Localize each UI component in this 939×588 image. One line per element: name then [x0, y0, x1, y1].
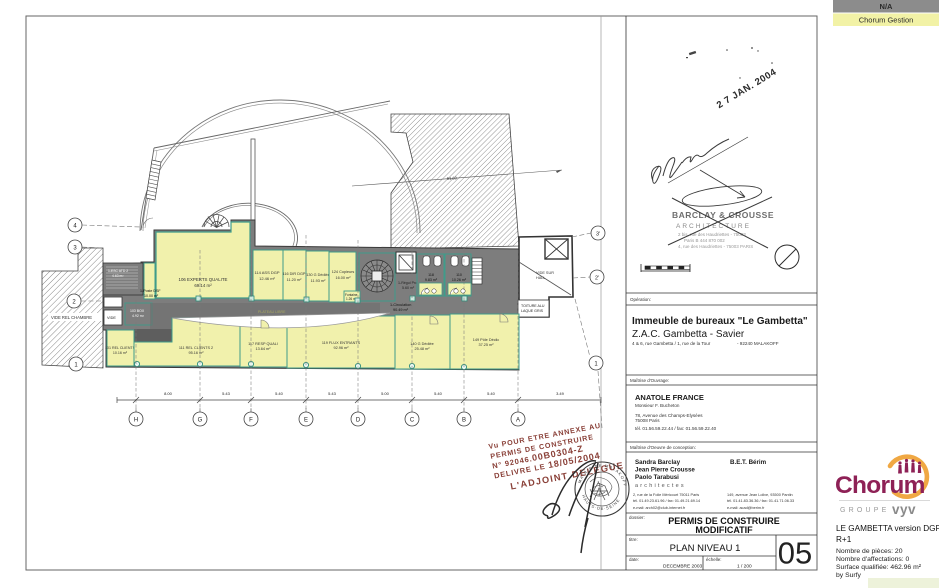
svg-text:117 RESP QUALI: 117 RESP QUALI — [248, 342, 278, 346]
svg-text:4 & 6, rue Gambetta / 1,: 4 & 6, rue Gambetta / 1, rue de la Tour — [632, 341, 711, 346]
svg-text:Paris B 444 870 002: Paris B 444 870 002 — [684, 238, 725, 243]
svg-text:GROUPE: GROUPE — [840, 507, 890, 514]
svg-text:10.16 m²: 10.16 m² — [113, 351, 128, 355]
svg-text:95.16 m²: 95.16 m² — [189, 351, 205, 355]
svg-text:Immeuble de bureaux "Le Gambet: Immeuble de bureaux "Le Gambetta" — [632, 316, 808, 327]
svg-text:E: E — [304, 418, 308, 424]
svg-text:10.00 m²: 10.00 m² — [144, 294, 159, 298]
svg-text:140 G Dédiée: 140 G Dédiée — [410, 342, 433, 346]
svg-text:tél. 01.41.83.36.36 / fax: 01.: tél. 01.41.83.36.36 / fax: 01.41.71.06.3… — [727, 499, 794, 503]
svg-text:114 ASS DGP: 114 ASS DGP — [254, 270, 279, 275]
svg-text:HALL: HALL — [536, 276, 546, 280]
svg-text:BARCLAY & CROUSSE: BARCLAY & CROUSSE — [672, 210, 774, 220]
svg-text:12.46 m²: 12.46 m² — [259, 276, 275, 281]
svg-text:tél. 01.56.59.22.44 / fax: 01.: tél. 01.56.59.22.44 / fax: 01.56.59.22.4… — [635, 426, 717, 431]
svg-text:Chorum Gestion: Chorum Gestion — [859, 16, 914, 25]
svg-text:H: H — [134, 418, 138, 424]
svg-text:5.40: 5.40 — [275, 391, 284, 396]
svg-text:architectes: architectes — [635, 483, 686, 489]
svg-text:Maîtrise d'Oeuvre de conceptio: Maîtrise d'Oeuvre de conception: — [630, 445, 696, 450]
svg-text:VIDE SUR: VIDE SUR — [536, 271, 554, 275]
svg-text:vyv: vyv — [892, 502, 916, 517]
svg-text:VIDE REL CHAMBRE: VIDE REL CHAMBRE — [51, 315, 92, 320]
svg-text:échelle:: échelle: — [706, 557, 722, 562]
svg-text:Chorum: Chorum — [835, 472, 925, 499]
svg-text:A: A — [516, 418, 520, 424]
svg-text:MODIFICATIF: MODIFICATIF — [695, 525, 753, 535]
svg-text:4.92 m²: 4.92 m² — [132, 314, 145, 318]
svg-text:B.E.T. Bérim: B.E.T. Bérim — [730, 459, 767, 466]
svg-text:124 Copieurs: 124 Copieurs — [332, 270, 355, 274]
svg-text:Maîtrise d'Ouvrage:: Maîtrise d'Ouvrage: — [630, 378, 669, 383]
svg-text:116 DIR DGP: 116 DIR DGP — [283, 272, 306, 276]
svg-text:VIDE: VIDE — [107, 316, 116, 320]
svg-text:B: B — [462, 418, 466, 424]
svg-text:5.40: 5.40 — [487, 391, 496, 396]
svg-text:75008 Paris: 75008 Paris — [635, 418, 660, 423]
svg-text:C: C — [410, 418, 415, 424]
svg-text:TOITURE ALU: TOITURE ALU — [521, 304, 545, 308]
svg-text:Nombre de pièces: 20: Nombre de pièces: 20 — [836, 548, 903, 555]
svg-text:103 BOX: 103 BOX — [130, 309, 145, 313]
svg-text:111 REL CLIENTS 2: 111 REL CLIENTS 2 — [179, 346, 213, 350]
svg-text:101 REL CLIENTS: 101 REL CLIENTS — [105, 346, 136, 350]
svg-text:2 bis, rue des Haudriettes - 7: 2 bis, rue des Haudriettes - 75003 — [678, 232, 746, 237]
svg-text:tél. 01.49.23.61.96 / fax: 01.: tél. 01.49.23.61.96 / fax: 01.49.21.69.1… — [633, 499, 700, 503]
svg-text:69.14 m²: 69.14 m² — [194, 283, 212, 288]
svg-text:ANATOLE FRANCE: ANATOLE FRANCE — [635, 393, 704, 402]
svg-text:3': 3' — [596, 232, 600, 238]
svg-text:Paolo Tarabusi: Paolo Tarabusi — [635, 474, 679, 481]
svg-text:149, avenue Jean Lolive, 9350: 149, avenue Jean Lolive, 93500 Pantin — [727, 493, 793, 497]
svg-text:5.00: 5.00 — [381, 391, 390, 396]
svg-text:37.25 m²: 37.25 m² — [479, 343, 495, 347]
svg-text:1-Circulation: 1-Circulation — [390, 303, 411, 307]
svg-text:e-mail: arch02@club-internet: e-mail: arch02@club-internet.fr — [633, 506, 686, 510]
svg-text:date:: date: — [629, 557, 639, 562]
svg-text:1-ESC ATD 2: 1-ESC ATD 2 — [108, 269, 128, 273]
svg-text:1 / 200: 1 / 200 — [737, 564, 752, 570]
svg-text:Nombre d'affectations: 0: Nombre d'affectations: 0 — [836, 556, 910, 563]
svg-text:05: 05 — [778, 536, 812, 571]
svg-text:D: D — [356, 418, 361, 424]
svg-text:5.43: 5.43 — [328, 391, 337, 396]
svg-text:13.64 m²: 13.64 m² — [256, 347, 272, 351]
svg-text:DECEMBRE 2003: DECEMBRE 2003 — [663, 564, 703, 570]
svg-text:2, rue de la Folie Méricourt 7: 2, rue de la Folie Méricourt 75011 Paris — [633, 493, 699, 497]
svg-text:2': 2' — [595, 276, 599, 282]
svg-text:Monsieur F. Bucheton: Monsieur F. Bucheton — [635, 403, 680, 408]
svg-text:106 EXPERTS QUALITE: 106 EXPERTS QUALITE — [179, 277, 228, 282]
svg-text:F: F — [249, 418, 253, 424]
svg-text:Z.A.C. Gambetta - Savier: Z.A.C. Gambetta - Savier — [632, 329, 745, 340]
svg-text:5.43: 5.43 — [222, 391, 231, 396]
svg-text:PLATEAU LIBRE: PLATEAU LIBRE — [258, 310, 286, 314]
svg-text:titre:: titre: — [629, 537, 638, 542]
svg-text:110: 110 — [456, 273, 462, 277]
svg-text:PLAN NIVEAU 1: PLAN NIVEAU 1 — [670, 543, 741, 554]
svg-text:Surface qualifiée: 462.96 m²: Surface qualifiée: 462.96 m² — [836, 564, 922, 571]
svg-text:LE GAMBETTA version DGP: LE GAMBETTA version DGP — [836, 524, 939, 533]
svg-text:149 Pôle Déclic: 149 Pôle Déclic — [473, 338, 499, 342]
svg-text:3.49: 3.49 — [556, 391, 565, 396]
svg-text:G: G — [198, 418, 203, 424]
svg-text:Sandra Barclay: Sandra Barclay — [635, 459, 681, 466]
svg-text:Opération:: Opération: — [630, 297, 651, 302]
svg-text:by Surfy: by Surfy — [836, 572, 862, 579]
svg-text:dossier:: dossier: — [629, 515, 645, 520]
svg-text:5.60 m²: 5.60 m² — [402, 286, 415, 290]
svg-text:N/A: N/A — [880, 2, 894, 11]
svg-text:9.83 m²: 9.83 m² — [425, 278, 438, 282]
svg-text:25.48 m²: 25.48 m² — [415, 347, 431, 351]
svg-text:92.96 m²: 92.96 m² — [334, 346, 350, 350]
svg-text:- 92240 MALAKOFF: - 92240 MALAKOFF — [737, 341, 779, 346]
svg-text:5.40: 5.40 — [434, 391, 443, 396]
svg-text:e-mail: acad@berim.fr: e-mail: acad@berim.fr — [727, 506, 765, 510]
svg-text:1-Poste DSF: 1-Poste DSF — [140, 289, 161, 293]
svg-text:51.60: 51.60 — [447, 175, 458, 181]
svg-text:4, rue des Haudriettes - 75003: 4, rue des Haudriettes - 75003 PARIS — [678, 244, 753, 249]
svg-text:16.00 m²: 16.00 m² — [336, 276, 352, 280]
svg-text:11.93 m²: 11.93 m² — [311, 279, 326, 283]
svg-text:R+1: R+1 — [836, 535, 852, 544]
svg-text:118: 118 — [428, 273, 434, 277]
svg-text:Jean Pierre Crousse: Jean Pierre Crousse — [635, 467, 695, 474]
svg-text:90.49 m²: 90.49 m² — [393, 308, 409, 312]
svg-text:10.26 m²: 10.26 m² — [452, 278, 467, 282]
svg-text:LAQUE GRIS: LAQUE GRIS — [521, 309, 544, 313]
svg-text:4.63 m²: 4.63 m² — [112, 274, 124, 278]
svg-text:119 FLUX ENTRANTS: 119 FLUX ENTRANTS — [322, 341, 361, 345]
svg-text:8.00: 8.00 — [164, 391, 173, 396]
svg-text:130 G Dédiée: 130 G Dédiée — [306, 273, 329, 277]
svg-text:11.20 m²: 11.20 m² — [287, 278, 302, 282]
